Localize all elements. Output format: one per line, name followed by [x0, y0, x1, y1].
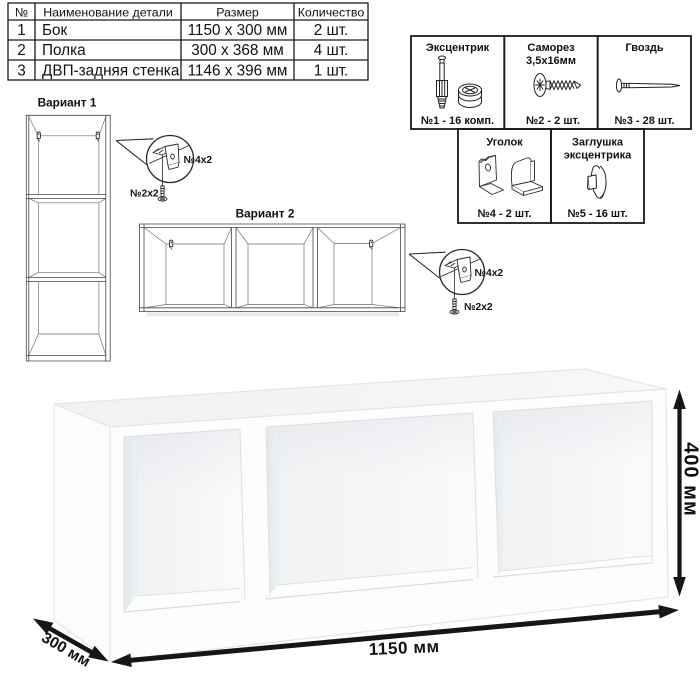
svg-text:400 мм: 400 мм — [680, 442, 700, 517]
svg-text:300 х 368 мм: 300 х 368 мм — [191, 42, 283, 59]
svg-text:№4х2: №4х2 — [475, 268, 504, 279]
svg-text:ДВП-задняя стенка: ДВП-задняя стенка — [42, 63, 180, 80]
svg-text:Полка: Полка — [42, 42, 86, 59]
svg-text:Заглушка: Заглушка — [572, 137, 624, 149]
svg-text:Уголок: Уголок — [486, 137, 523, 149]
svg-text:Бок: Бок — [42, 22, 68, 39]
svg-text:2 шт.: 2 шт. — [314, 22, 349, 39]
svg-text:эксцентрика: эксцентрика — [564, 150, 632, 162]
svg-text:Размер: Размер — [216, 6, 259, 20]
svg-text:Вариант 2: Вариант 2 — [236, 207, 295, 221]
svg-text:№2х2: №2х2 — [464, 302, 493, 313]
svg-text:4 шт.: 4 шт. — [314, 42, 349, 59]
svg-text:1: 1 — [17, 22, 26, 39]
svg-text:3: 3 — [17, 63, 26, 80]
svg-text:1146 х 396 мм: 1146 х 396 мм — [188, 63, 288, 80]
svg-text:№4 - 2 шт.: №4 - 2 шт. — [478, 208, 532, 220]
svg-text:Количество: Количество — [298, 6, 365, 20]
svg-text:Вариант 1: Вариант 1 — [38, 96, 97, 110]
svg-text:Эксцентрик: Эксцентрик — [426, 42, 490, 54]
svg-text:1150 мм: 1150 мм — [368, 637, 440, 659]
svg-text:1150 х 300 мм: 1150 х 300 мм — [188, 22, 288, 39]
svg-text:№4х2: №4х2 — [184, 155, 213, 166]
svg-text:№5 - 16 шт.: №5 - 16 шт. — [567, 208, 627, 220]
svg-text:Саморез: Саморез — [527, 42, 575, 54]
svg-text:№2 - 2 шт.: №2 - 2 шт. — [526, 115, 580, 127]
svg-text:№1 - 16 комп.: №1 - 16 комп. — [421, 115, 494, 127]
svg-text:№: № — [15, 6, 28, 20]
svg-text:2: 2 — [17, 42, 26, 59]
svg-text:1 шт.: 1 шт. — [314, 63, 349, 80]
svg-text:Наименование детали: Наименование детали — [43, 6, 173, 20]
svg-text:№3 - 28 шт.: №3 - 28 шт. — [614, 115, 674, 127]
svg-text:Гвоздь: Гвоздь — [625, 42, 664, 54]
svg-text:3,5х16мм: 3,5х16мм — [526, 55, 576, 67]
svg-text:№2х2: №2х2 — [130, 189, 159, 200]
